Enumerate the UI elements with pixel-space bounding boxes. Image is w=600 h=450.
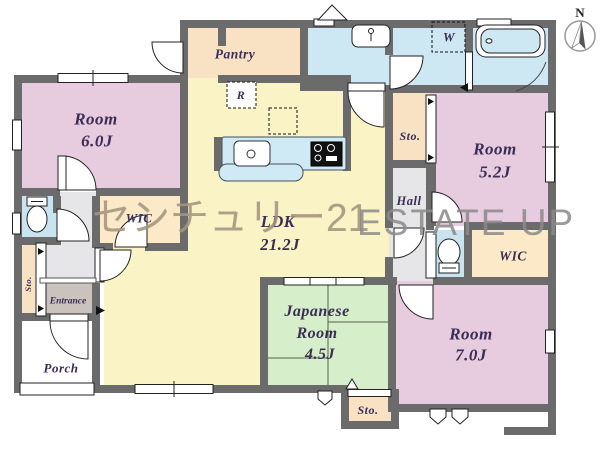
floorplan-graphics: [0, 0, 600, 450]
grill-icon: [326, 156, 337, 161]
room-6-label: Room: [74, 111, 118, 128]
japanese-room-label-1: Japanese: [284, 304, 349, 320]
entrance-label: Entrance: [50, 297, 86, 307]
door-swing: [152, 42, 183, 73]
opening-marker: [430, 409, 446, 424]
compass-north-label: N: [575, 5, 584, 21]
toilet-bowl: [27, 206, 47, 232]
pantry-label: Pantry: [215, 47, 256, 61]
compass-needle-light: [572, 20, 582, 49]
window: [13, 213, 21, 234]
vent-icon: [318, 5, 347, 20]
opening-marker: [318, 391, 332, 405]
window: [546, 330, 555, 353]
washer-label: W: [443, 31, 455, 44]
entrance-step: [40, 278, 96, 283]
storage-right-label: Sto.: [399, 130, 420, 142]
floorplan: Room 6.0J Pantry R W LDK 21.2J Sto. Hall…: [0, 0, 600, 450]
wic-left-label: WIC: [126, 212, 153, 225]
japanese-room-size: 4.5J: [305, 347, 335, 363]
compass: [565, 20, 595, 51]
room-5-size: 5.2J: [479, 164, 511, 181]
sliding-partition: [284, 278, 364, 286]
porch-label: Porch: [44, 362, 79, 375]
kitchen-counter-return: [219, 164, 303, 181]
room-7-label: Room: [449, 326, 493, 343]
faucet-icon: [247, 150, 255, 158]
storage-bottom-label: Sto.: [357, 404, 378, 416]
storage-left-label: Sto.: [24, 276, 33, 291]
ldk-size: 21.2J: [260, 237, 300, 254]
wic-right-label: WIC: [499, 249, 527, 263]
room-5-label: Room: [473, 141, 517, 158]
window: [13, 120, 22, 150]
ldk-label: LDK: [261, 214, 296, 231]
room-6-size: 6.0J: [81, 133, 113, 150]
hall-left-floor2: [40, 241, 96, 283]
door-swing: [50, 321, 88, 359]
hall-label: Hall: [397, 195, 422, 208]
porch-step: [20, 383, 94, 395]
opening-marker: [452, 409, 468, 424]
japanese-room-label-2: Room: [296, 326, 337, 342]
sliding-door: [348, 390, 391, 397]
drain-icon: [486, 39, 492, 43]
sliding-door: [426, 232, 436, 278]
sliding-door: [426, 95, 436, 163]
refrigerator-label: R: [237, 89, 246, 101]
toilet-bowl: [438, 239, 460, 265]
arrow-icon: [96, 306, 105, 315]
room-7-size: 7.0J: [455, 347, 487, 364]
